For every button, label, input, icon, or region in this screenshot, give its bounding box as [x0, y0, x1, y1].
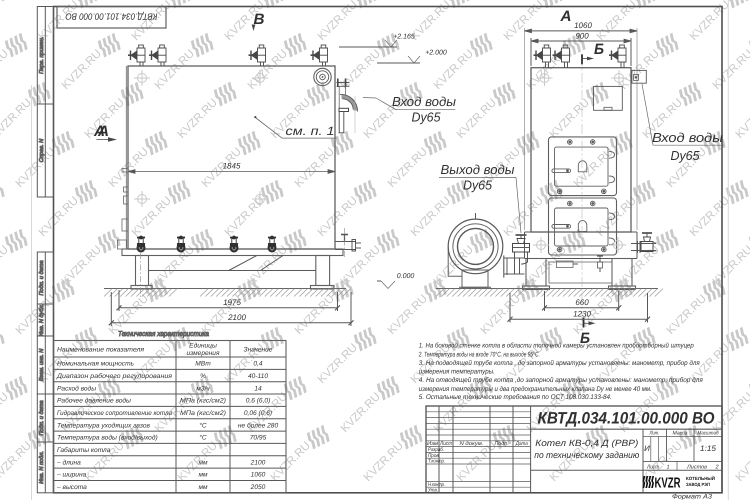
- svg-text:МПа (кгс/см2): МПа (кгс/см2): [180, 398, 226, 405]
- svg-text:2100: 2100: [250, 459, 266, 466]
- svg-text:Б: Б: [594, 41, 604, 58]
- svg-text:°С: °С: [199, 435, 207, 442]
- svg-text:измерения температуры.: измерения температуры.: [419, 369, 495, 376]
- svg-text:2050: 2050: [250, 484, 266, 491]
- svg-text:Dy65: Dy65: [412, 110, 442, 125]
- svg-text:А: А: [97, 123, 109, 140]
- svg-text:В: В: [254, 11, 265, 28]
- svg-text:Dy65: Dy65: [463, 178, 493, 193]
- svg-text:0,6 (6,0): 0,6 (6,0): [246, 398, 271, 405]
- svg-text:Справ. N: Справ. N: [39, 138, 45, 162]
- svg-text:Дата: Дата: [515, 441, 528, 447]
- svg-text:1845: 1845: [223, 162, 241, 171]
- svg-text:Котел КВ-0,4 Д (РВР): Котел КВ-0,4 Д (РВР): [535, 438, 638, 448]
- svg-text:– ширина: – ширина: [56, 472, 87, 479]
- svg-text:1: 1: [666, 464, 669, 470]
- svg-text:Температура уходящих газов: Температура уходящих газов: [57, 422, 150, 429]
- svg-text:Значение: Значение: [244, 347, 273, 354]
- svg-text:ЗАВОД РЭП: ЗАВОД РЭП: [686, 482, 710, 487]
- svg-text:КВТД.034.101.00.000 ВО: КВТД.034.101.00.000 ВО: [66, 12, 158, 22]
- svg-text:N докум.: N докум.: [460, 441, 484, 447]
- svg-text:Подп.: Подп.: [495, 441, 509, 447]
- svg-text:Перв. примен.: Перв. примен.: [39, 37, 45, 74]
- svg-text:Рабочее давление воды: Рабочее давление воды: [57, 398, 131, 405]
- svg-text:мм: мм: [198, 484, 208, 491]
- svg-text:Вход воды: Вход воды: [652, 130, 723, 145]
- svg-text:КОТЕЛЬНЫЙ: КОТЕЛЬНЫЙ: [686, 475, 715, 481]
- svg-text:Диапазон рабочего регулировани: Диапазон рабочего регулирования: [56, 373, 173, 380]
- svg-text:Габариты котла: Габариты котла: [57, 447, 111, 454]
- svg-text:Гидравлическое сопротивление к: Гидравлическое сопротивление котла: [57, 410, 172, 417]
- svg-text:Dy65: Dy65: [671, 148, 701, 163]
- svg-text:0,06 (0,6): 0,06 (0,6): [244, 410, 272, 417]
- svg-text:2. Температура воды на входе: 2. Температура воды на входе 70°С, на вы…: [418, 351, 540, 358]
- svg-text:измерения температуры и два пр: измерения температуры и два предохраните…: [419, 386, 652, 393]
- svg-text:900: 900: [575, 32, 589, 41]
- svg-text:1. На боковой стенке котла в: 1. На боковой стенке котла в области топ…: [419, 342, 694, 350]
- svg-text:+2.000: +2.000: [425, 50, 447, 57]
- svg-text:3. На подводящей трубе котла: 3. На подводящей трубе котла , до запорн…: [419, 359, 700, 367]
- svg-text:0.000: 0.000: [397, 273, 415, 280]
- svg-text:Формат А3: Формат А3: [672, 494, 712, 500]
- svg-text:660: 660: [575, 298, 589, 307]
- svg-text:2: 2: [714, 464, 718, 470]
- svg-text:Взам. инв. N: Взам. инв. N: [39, 348, 45, 382]
- svg-text:70/95: 70/95: [250, 435, 267, 442]
- svg-text:1975: 1975: [223, 298, 241, 307]
- svg-text:KVZR: KVZR: [655, 476, 681, 492]
- svg-text:1060: 1060: [574, 21, 592, 30]
- svg-text:%: %: [200, 373, 206, 380]
- svg-text:не более 280: не более 280: [238, 422, 279, 429]
- svg-text:Лист: Лист: [646, 464, 659, 470]
- svg-text:2100: 2100: [227, 313, 246, 322]
- svg-text:Наименование показателя: Наименование показателя: [57, 347, 144, 354]
- svg-text:4. На отводящей трубе котла ,: 4. На отводящей трубе котла ,до запорной…: [419, 376, 703, 384]
- svg-text:Температура воды (вход/выход): Температура воды (вход/выход): [57, 435, 158, 442]
- svg-text:Инв. N подл.: Инв. N подл.: [38, 451, 45, 484]
- svg-text:А: А: [559, 8, 571, 25]
- svg-text:°С: °С: [199, 422, 207, 429]
- svg-text:Единицы: Единицы: [189, 343, 217, 350]
- svg-text:Масса: Масса: [673, 431, 688, 437]
- svg-text:40-110: 40-110: [248, 373, 268, 380]
- svg-text:5. Остальные технические треб: 5. Остальные технические требования по О…: [419, 394, 612, 401]
- svg-text:1:15: 1:15: [700, 444, 717, 453]
- svg-text:измерения: измерения: [187, 350, 220, 357]
- svg-text:14: 14: [254, 385, 262, 392]
- svg-text:И: И: [644, 444, 650, 453]
- svg-text:Утв.: Утв.: [428, 488, 438, 494]
- svg-text:– длина: – длина: [56, 459, 81, 466]
- svg-text:КВТД.034.101.00.000 ВО: КВТД.034.101.00.000 ВО: [538, 410, 715, 428]
- svg-text:см. п. 1: см. п. 1: [286, 124, 335, 138]
- svg-text:Расход воды: Расход воды: [57, 385, 96, 392]
- svg-text:Подп. и дата: Подп. и дата: [38, 400, 45, 435]
- svg-text:Масштаб: Масштаб: [698, 431, 720, 437]
- svg-text:– высота: – высота: [56, 484, 87, 491]
- svg-text:Т.контр.: Т.контр.: [428, 459, 445, 465]
- svg-text:м3/ч: м3/ч: [196, 385, 210, 392]
- svg-text:Выход воды: Выход воды: [441, 162, 515, 177]
- svg-text:Листов: Листов: [686, 464, 707, 470]
- svg-text:1230: 1230: [573, 309, 591, 318]
- svg-text:Техническая характеристика: Техническая характеристика: [118, 329, 209, 338]
- svg-text:Номинальная мощность: Номинальная мощность: [57, 361, 135, 368]
- svg-text:Инв. N дубл.: Инв. N дубл.: [38, 304, 45, 336]
- svg-text:МВт: МВт: [195, 361, 211, 368]
- svg-text:Подп. и дата: Подп. и дата: [38, 260, 45, 295]
- svg-text:+2.165: +2.165: [393, 34, 415, 41]
- svg-text:мм: мм: [198, 472, 208, 479]
- svg-text:по техническому заданию: по техническому заданию: [534, 450, 639, 460]
- svg-text:1060: 1060: [251, 472, 266, 479]
- svg-text:Лит.: Лит.: [649, 431, 660, 437]
- svg-text:0,4: 0,4: [253, 361, 262, 368]
- svg-text:Вход воды: Вход воды: [392, 94, 456, 109]
- svg-text:мм: мм: [198, 459, 208, 466]
- svg-text:МПа (кгс/см2): МПа (кгс/см2): [180, 410, 226, 417]
